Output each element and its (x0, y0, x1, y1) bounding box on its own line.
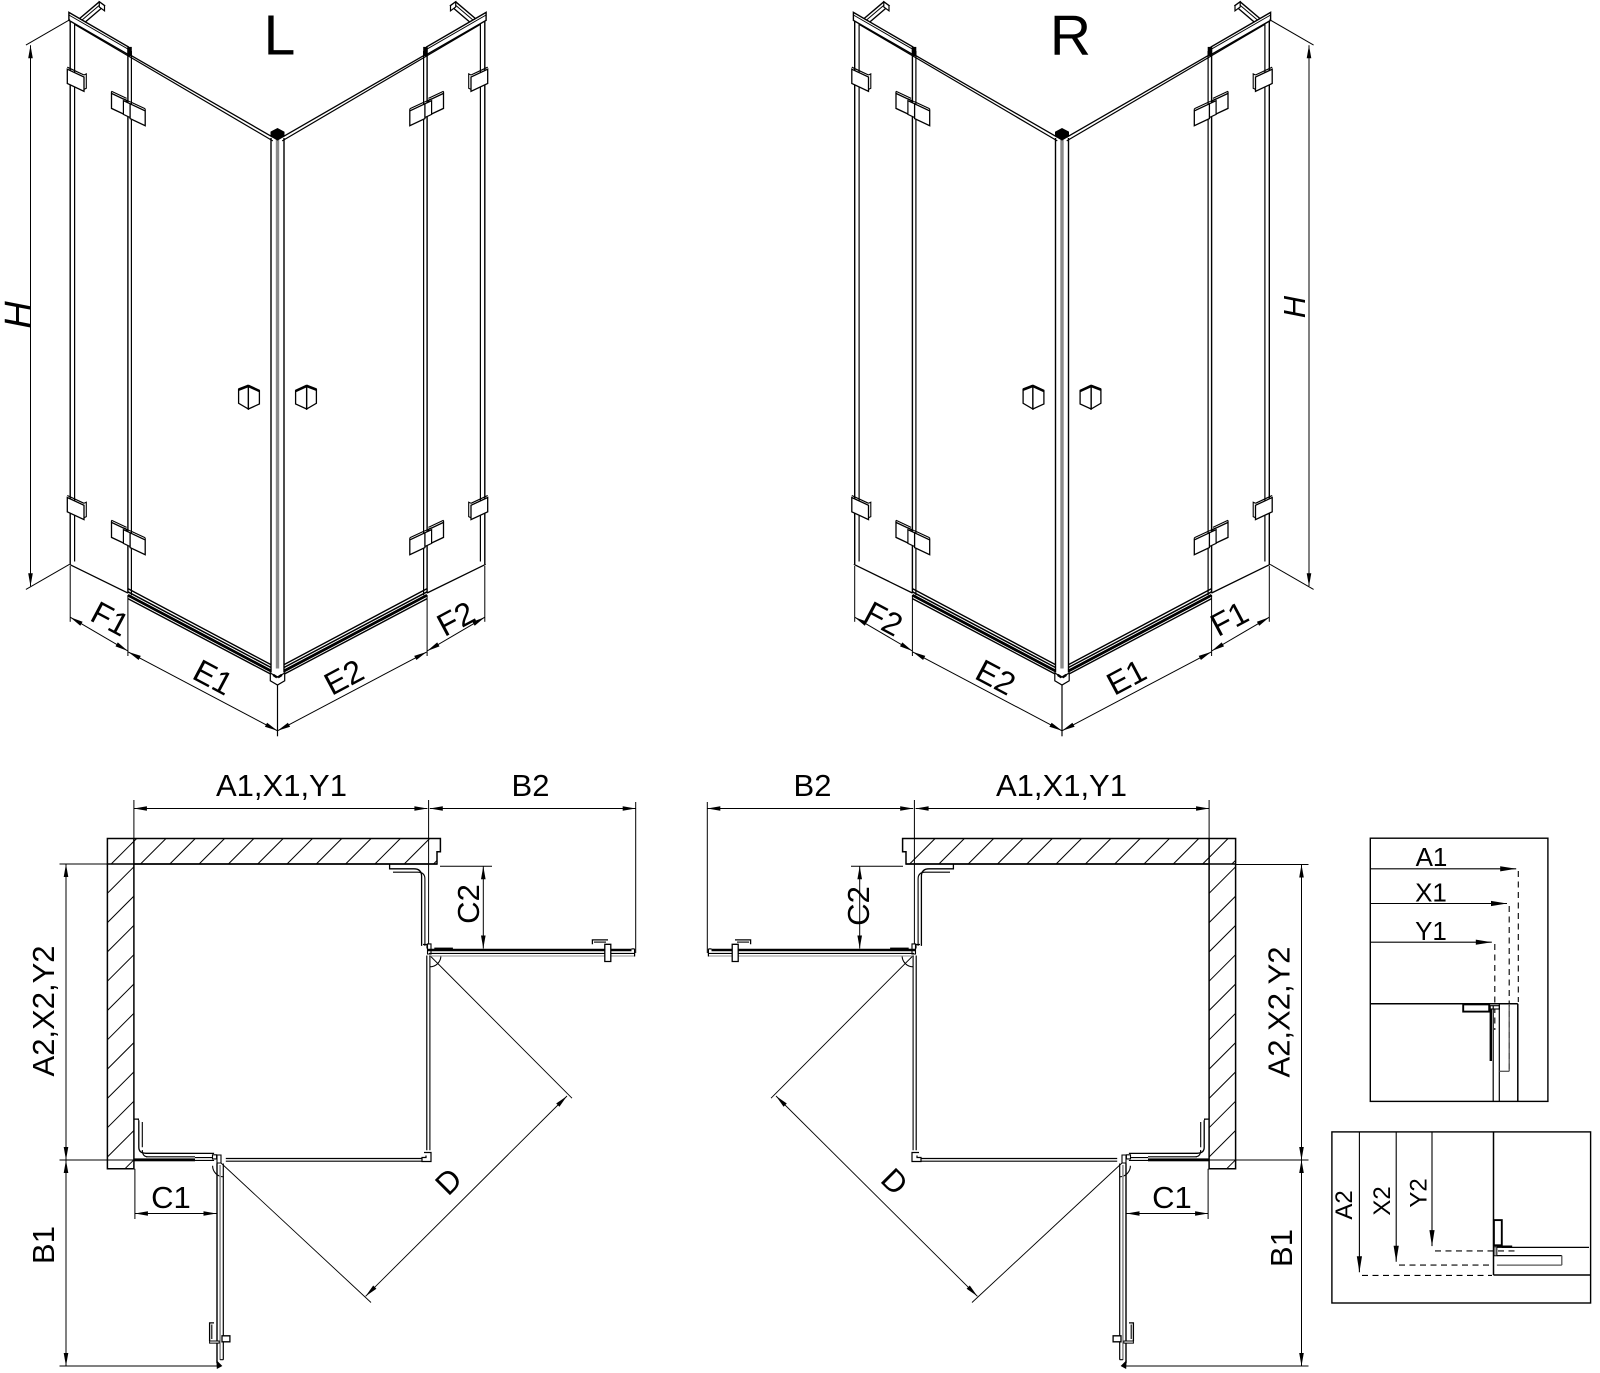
svg-text:C1: C1 (151, 1180, 191, 1215)
svg-text:C1: C1 (1152, 1180, 1192, 1215)
svg-text:Y2: Y2 (1406, 1178, 1433, 1207)
svg-text:A1,X1,Y1: A1,X1,Y1 (996, 768, 1127, 803)
svg-text:A2: A2 (1331, 1190, 1358, 1219)
svg-text:Y1: Y1 (1415, 916, 1447, 946)
svg-text:R: R (1050, 4, 1091, 68)
svg-text:A1,X1,Y1: A1,X1,Y1 (216, 768, 347, 803)
svg-text:C2: C2 (841, 886, 876, 926)
svg-text:B2: B2 (512, 768, 550, 803)
svg-text:B2: B2 (794, 768, 832, 803)
svg-text:B1: B1 (26, 1226, 61, 1264)
svg-text:H: H (0, 301, 40, 329)
svg-text:H: H (1277, 295, 1312, 318)
svg-text:A1: A1 (1416, 842, 1448, 872)
svg-text:A2,X2,Y2: A2,X2,Y2 (1262, 947, 1297, 1078)
svg-text:C2: C2 (451, 884, 486, 924)
svg-text:L: L (264, 4, 296, 68)
svg-text:X2: X2 (1369, 1186, 1396, 1215)
svg-text:X1: X1 (1415, 878, 1447, 908)
svg-text:B1: B1 (1264, 1229, 1299, 1267)
svg-text:A2,X2,Y2: A2,X2,Y2 (26, 946, 61, 1077)
